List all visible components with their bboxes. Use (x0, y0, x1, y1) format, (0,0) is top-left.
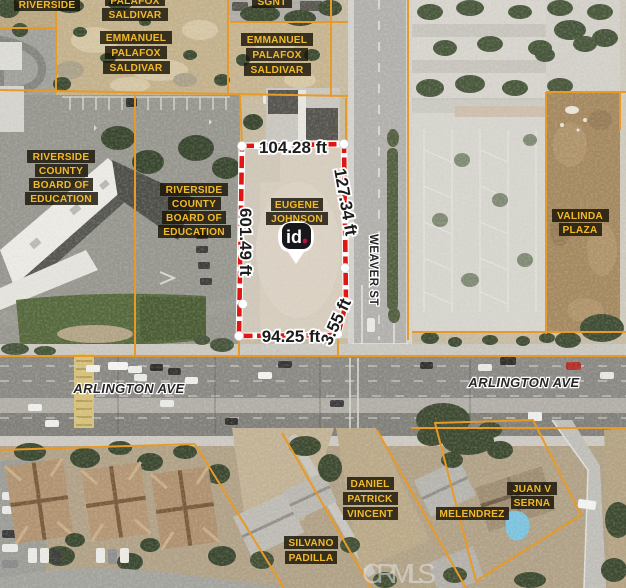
svg-text:COUNTY: COUNTY (172, 199, 216, 210)
svg-text:BOARD OF: BOARD OF (166, 213, 222, 224)
svg-text:EDUCATION: EDUCATION (163, 227, 225, 238)
svg-text:PLAZA: PLAZA (563, 225, 598, 236)
svg-text:601.49 ft: 601.49 ft (236, 208, 255, 276)
svg-text:CRMLS: CRMLS (362, 558, 436, 588)
svg-text:PALAFOX: PALAFOX (110, 0, 159, 7)
svg-text:RIVERSIDE: RIVERSIDE (166, 185, 223, 196)
svg-text:RIVERSIDE: RIVERSIDE (19, 0, 76, 11)
svg-text:SALDIVAR: SALDIVAR (110, 63, 163, 74)
svg-text:BOARD OF: BOARD OF (33, 180, 89, 191)
svg-text:SILVANO: SILVANO (288, 538, 333, 549)
svg-text:SERNA: SERNA (514, 498, 551, 509)
svg-text:COUNTY: COUNTY (39, 166, 83, 177)
svg-text:PALAFOX: PALAFOX (111, 48, 160, 59)
svg-text:SALDIVAR: SALDIVAR (251, 65, 304, 76)
svg-text:EDUCATION: EDUCATION (30, 194, 92, 205)
svg-text:MELENDREZ: MELENDREZ (439, 509, 504, 520)
svg-text:WEAVER ST: WEAVER ST (367, 234, 379, 306)
svg-text:ARLINGTON AVE: ARLINGTON AVE (72, 381, 184, 396)
svg-text:JUAN V: JUAN V (513, 484, 552, 495)
svg-text:PALAFOX: PALAFOX (252, 50, 301, 61)
svg-text:EMMANUEL: EMMANUEL (106, 33, 166, 44)
svg-text:ARLINGTON AVE: ARLINGTON AVE (467, 375, 579, 390)
svg-text:SGNT: SGNT (257, 0, 287, 8)
svg-text:DANIEL: DANIEL (350, 479, 389, 490)
svg-text:SALDIVAR: SALDIVAR (109, 10, 162, 21)
svg-text:PATRICK: PATRICK (347, 494, 393, 505)
svg-text:EUGENE: EUGENE (275, 200, 319, 211)
svg-text:PADILLA: PADILLA (289, 553, 334, 564)
svg-text:RIVERSIDE: RIVERSIDE (33, 152, 90, 163)
svg-text:id: id (286, 227, 302, 247)
svg-text:104.28 ft: 104.28 ft (259, 138, 327, 157)
svg-text:94.25 ft: 94.25 ft (262, 327, 321, 346)
svg-text:VALINDA: VALINDA (557, 211, 603, 222)
svg-text:EMMANUEL: EMMANUEL (247, 35, 307, 46)
svg-text:VINCENT: VINCENT (347, 509, 394, 520)
